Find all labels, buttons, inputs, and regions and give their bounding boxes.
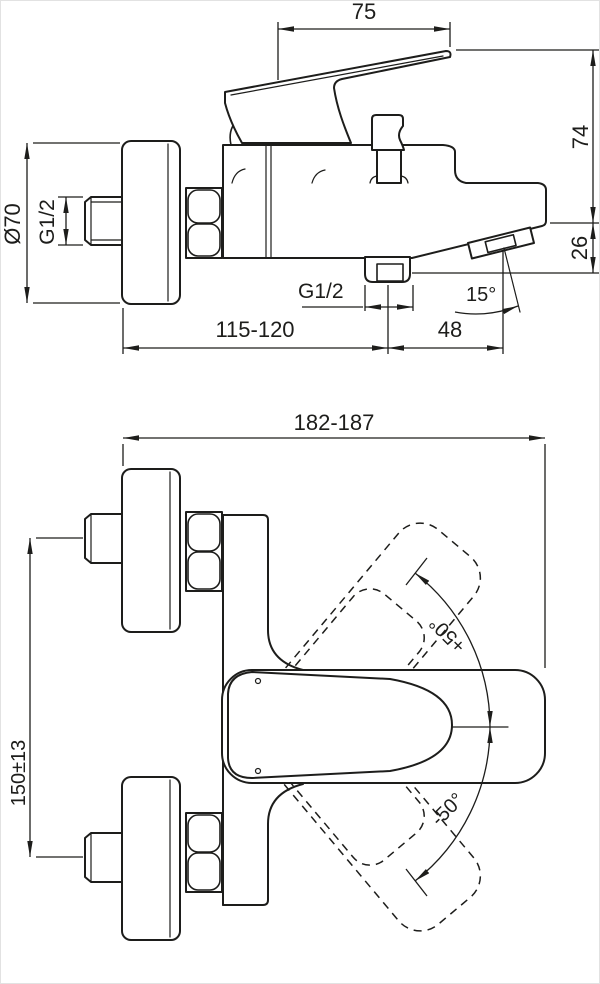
front-body-lower <box>223 784 303 905</box>
dim-g12-inlet-extension-lines <box>58 197 83 245</box>
side-escutcheon <box>122 141 180 304</box>
front-view: 182-187 150±13 +50° -50° <box>8 410 545 942</box>
side-lever-handle-edge-line <box>231 56 443 95</box>
front-view-dimensions: 182-187 150±13 +50° -50° <box>8 410 545 896</box>
side-shower-outlet-elbow <box>372 115 404 150</box>
side-view: 75 74 26 Ø70 G1/2 G1/2 11 <box>0 0 599 354</box>
dim-g12-outlet-label: G1/2 <box>298 280 344 303</box>
dim-minus50-label: -50° <box>427 789 469 831</box>
bath-mixer-technical-drawing: 75 74 26 Ø70 G1/2 G1/2 11 <box>0 0 600 984</box>
front-lever-handle-body <box>228 672 452 778</box>
side-shower-outlet-stem <box>377 150 401 183</box>
dim-dia70-label: Ø70 <box>0 203 25 245</box>
side-lever-handle <box>225 51 451 143</box>
front-top-escutcheon <box>122 469 180 632</box>
technical-drawing-page: 75 74 26 Ø70 G1/2 G1/2 11 <box>0 0 600 984</box>
dim-115-label: 115-120 <box>215 317 294 342</box>
dim-15deg-arc <box>455 306 518 314</box>
dim-15deg-reference-line <box>504 248 520 312</box>
dim-26-label: 26 <box>567 236 592 260</box>
dim-g12-inlet-label: G1/2 <box>36 199 59 245</box>
dim-150-extension-lines <box>36 538 83 857</box>
dim-150-label: 150±13 <box>8 740 30 807</box>
dim-g12-outlet-extension-lines <box>365 285 413 354</box>
dim-48-label: 48 <box>438 317 462 342</box>
dim-74-label: 74 <box>568 125 593 149</box>
dim-15deg-label: 15° <box>466 284 496 306</box>
dim-plus50-label: +50° <box>425 612 470 657</box>
dim-182-label: 182-187 <box>294 410 375 435</box>
front-bottom-escutcheon <box>122 777 180 940</box>
dim-75-label: 75 <box>352 0 376 24</box>
